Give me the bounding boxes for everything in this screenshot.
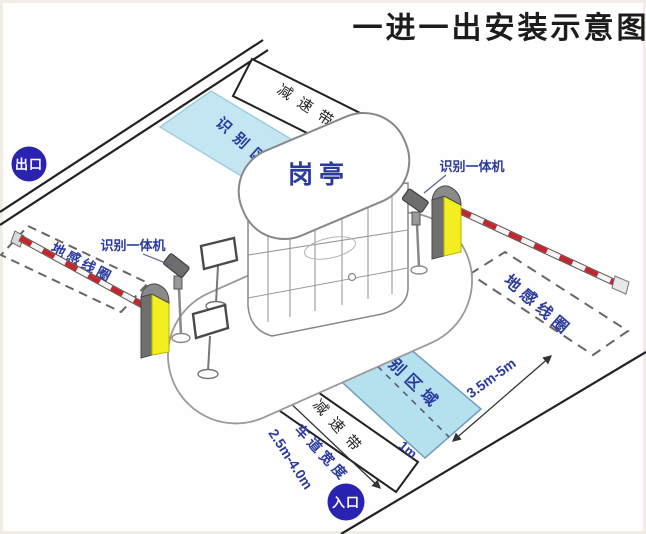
exit-badge: 出口	[12, 147, 47, 182]
loop-distance-label: 3.5m-5m	[463, 355, 518, 401]
page-title: 一进一出安装示意图	[353, 11, 646, 45]
exit-camera-head-icon	[163, 253, 190, 278]
entrance-detector-loop: 地感线圈	[470, 252, 628, 355]
exit-camera-callout: 识别一体机	[100, 238, 173, 266]
entrance-badge-label: 入口	[332, 495, 360, 510]
exit-camera-label: 识别一体机	[100, 238, 165, 253]
entrance-detector-loop-label: 地感线圈	[500, 271, 576, 340]
booth-label: 岗亭	[288, 160, 350, 189]
booth-door-handle	[349, 274, 356, 281]
entrance-badge: 入口	[328, 484, 365, 521]
entrance-camera-callout: 识别一体机	[424, 159, 505, 193]
exit-badge-label: 出口	[15, 157, 43, 172]
diagram-page: 减速带 识别区域 地感线圈 减速带 车道宽度 2.5m-4.0m 识别区域 1m…	[0, 0, 646, 534]
diagram-canvas: 减速带 识别区域 地感线圈 减速带 车道宽度 2.5m-4.0m 识别区域 1m…	[0, 0, 646, 534]
entrance-camera-label: 识别一体机	[439, 159, 504, 174]
